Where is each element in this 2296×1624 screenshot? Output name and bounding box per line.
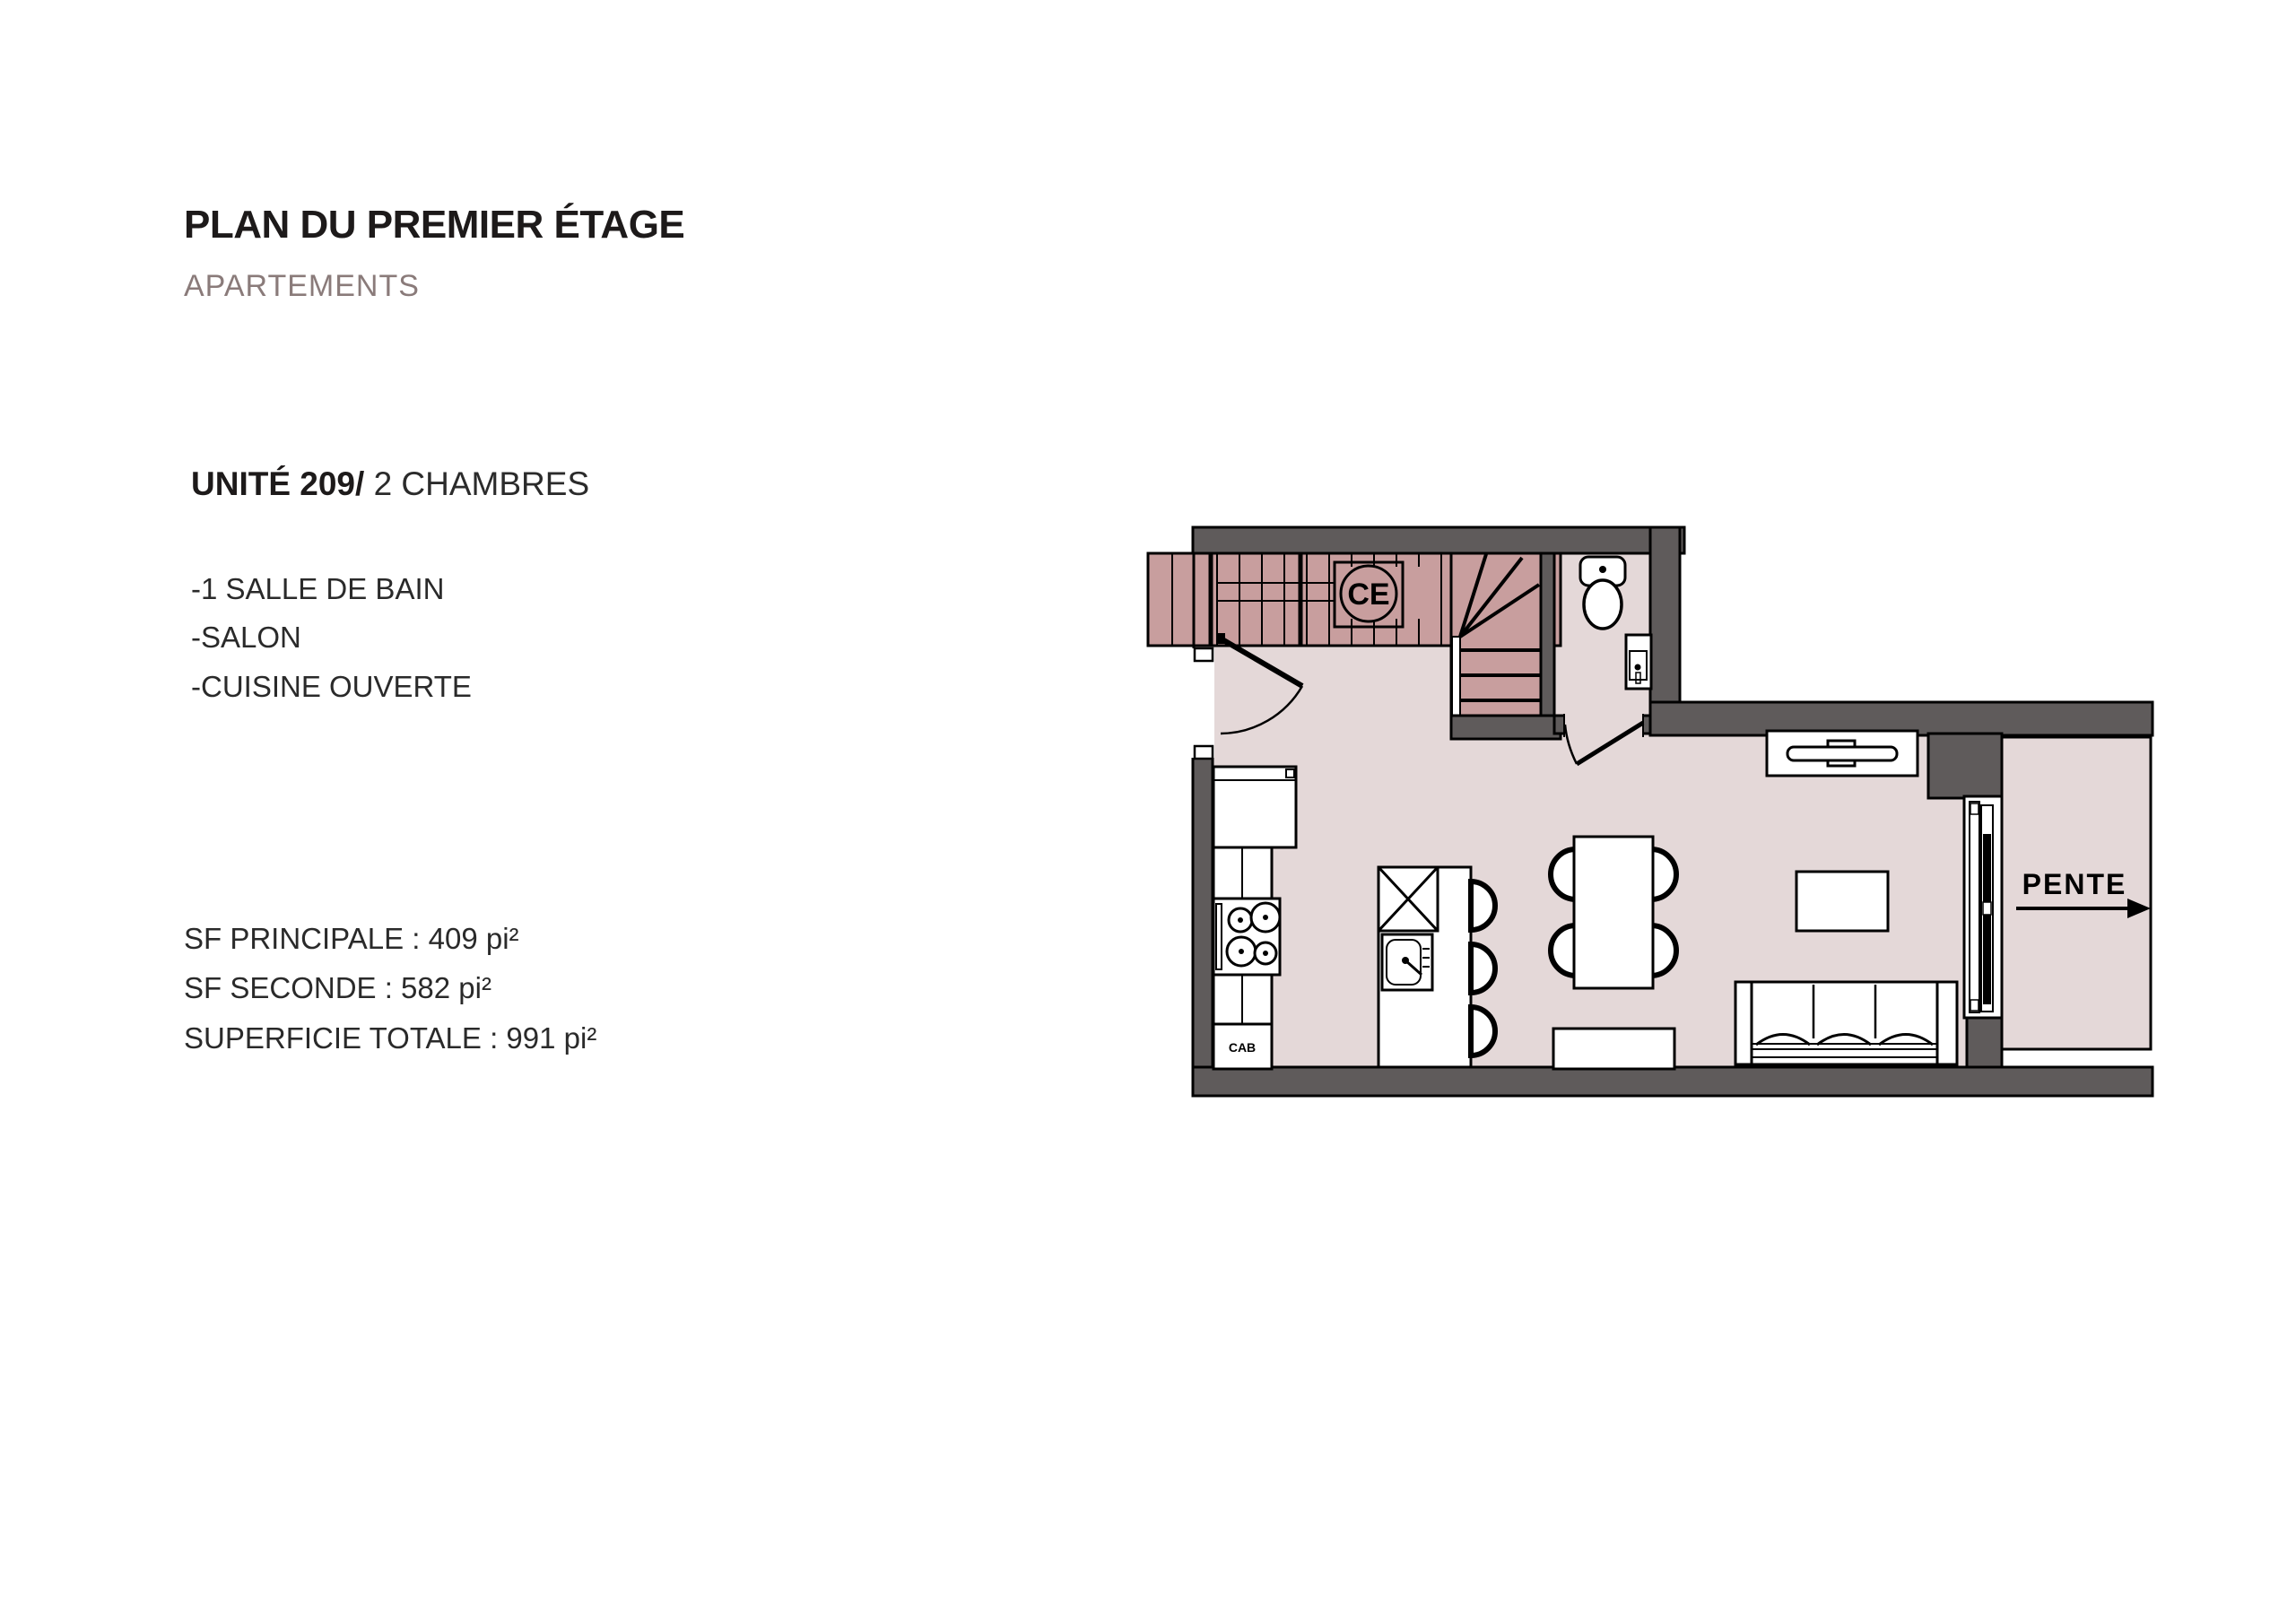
wall-right-block xyxy=(1928,734,2002,798)
dining-table xyxy=(1574,837,1653,988)
wall-bath-right xyxy=(1650,527,1680,704)
tv-console xyxy=(1767,731,1918,776)
wall-right-stub xyxy=(1967,1016,2002,1070)
slope-label: PENTE xyxy=(2022,868,2127,900)
dishwasher xyxy=(1378,867,1438,931)
fridge xyxy=(1213,767,1296,847)
island-sink xyxy=(1382,934,1432,990)
chair xyxy=(1551,849,1576,899)
bench xyxy=(1553,1029,1674,1069)
wall-under-winder xyxy=(1451,716,1561,739)
bathroom-door-opening xyxy=(1564,712,1643,737)
wall-bottom xyxy=(1193,1067,2152,1096)
kitchen-island xyxy=(1378,867,1495,1067)
stove xyxy=(1213,899,1280,975)
winder-stair xyxy=(1451,553,1541,729)
wall-left xyxy=(1193,758,1213,1072)
chair xyxy=(1651,849,1676,899)
balcony: PENTE xyxy=(2002,737,2151,1049)
chair xyxy=(1551,925,1576,976)
page: PLAN DU PREMIER ÉTAGE APARTEMENTS UNITÉ … xyxy=(0,0,2296,1624)
stool xyxy=(1471,944,1495,993)
sofa xyxy=(1735,982,1957,1064)
toilet xyxy=(1580,557,1625,629)
floor-plan: CE xyxy=(0,0,2296,1624)
bar-stools xyxy=(1471,881,1495,1055)
cabinet: CAB xyxy=(1213,1024,1272,1069)
stool xyxy=(1471,881,1495,930)
chair xyxy=(1651,925,1676,976)
sliding-door xyxy=(1964,796,2003,1018)
counter-upper xyxy=(1213,847,1272,899)
stool xyxy=(1471,1007,1495,1055)
wall-top xyxy=(1193,527,1684,553)
counter-lower xyxy=(1213,975,1272,1024)
cabinet-label: CAB xyxy=(1229,1040,1256,1055)
water-heater-label: CE xyxy=(1347,578,1389,612)
bathroom-sink xyxy=(1626,635,1651,689)
wall-stair-right xyxy=(1541,553,1554,719)
coffee-table xyxy=(1796,872,1888,931)
